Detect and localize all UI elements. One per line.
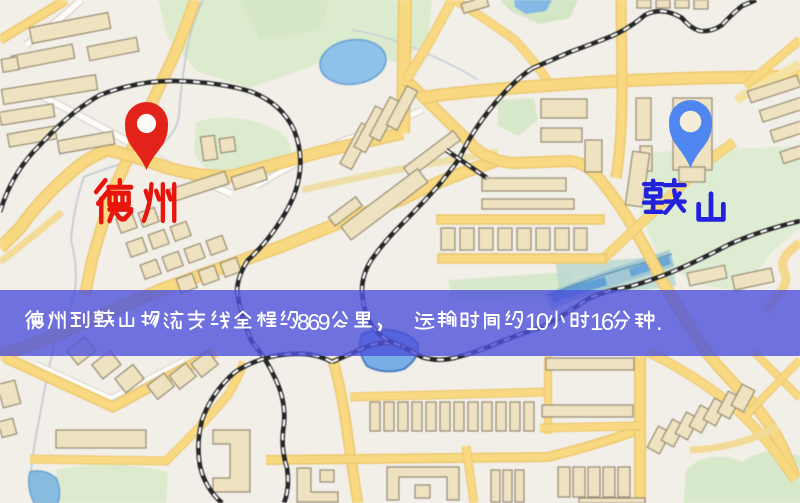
svg-text:869: 869 (297, 309, 330, 335)
svg-text:16: 16 (590, 309, 614, 336)
svg-text:.: . (656, 309, 663, 336)
svg-text:10: 10 (525, 309, 549, 336)
